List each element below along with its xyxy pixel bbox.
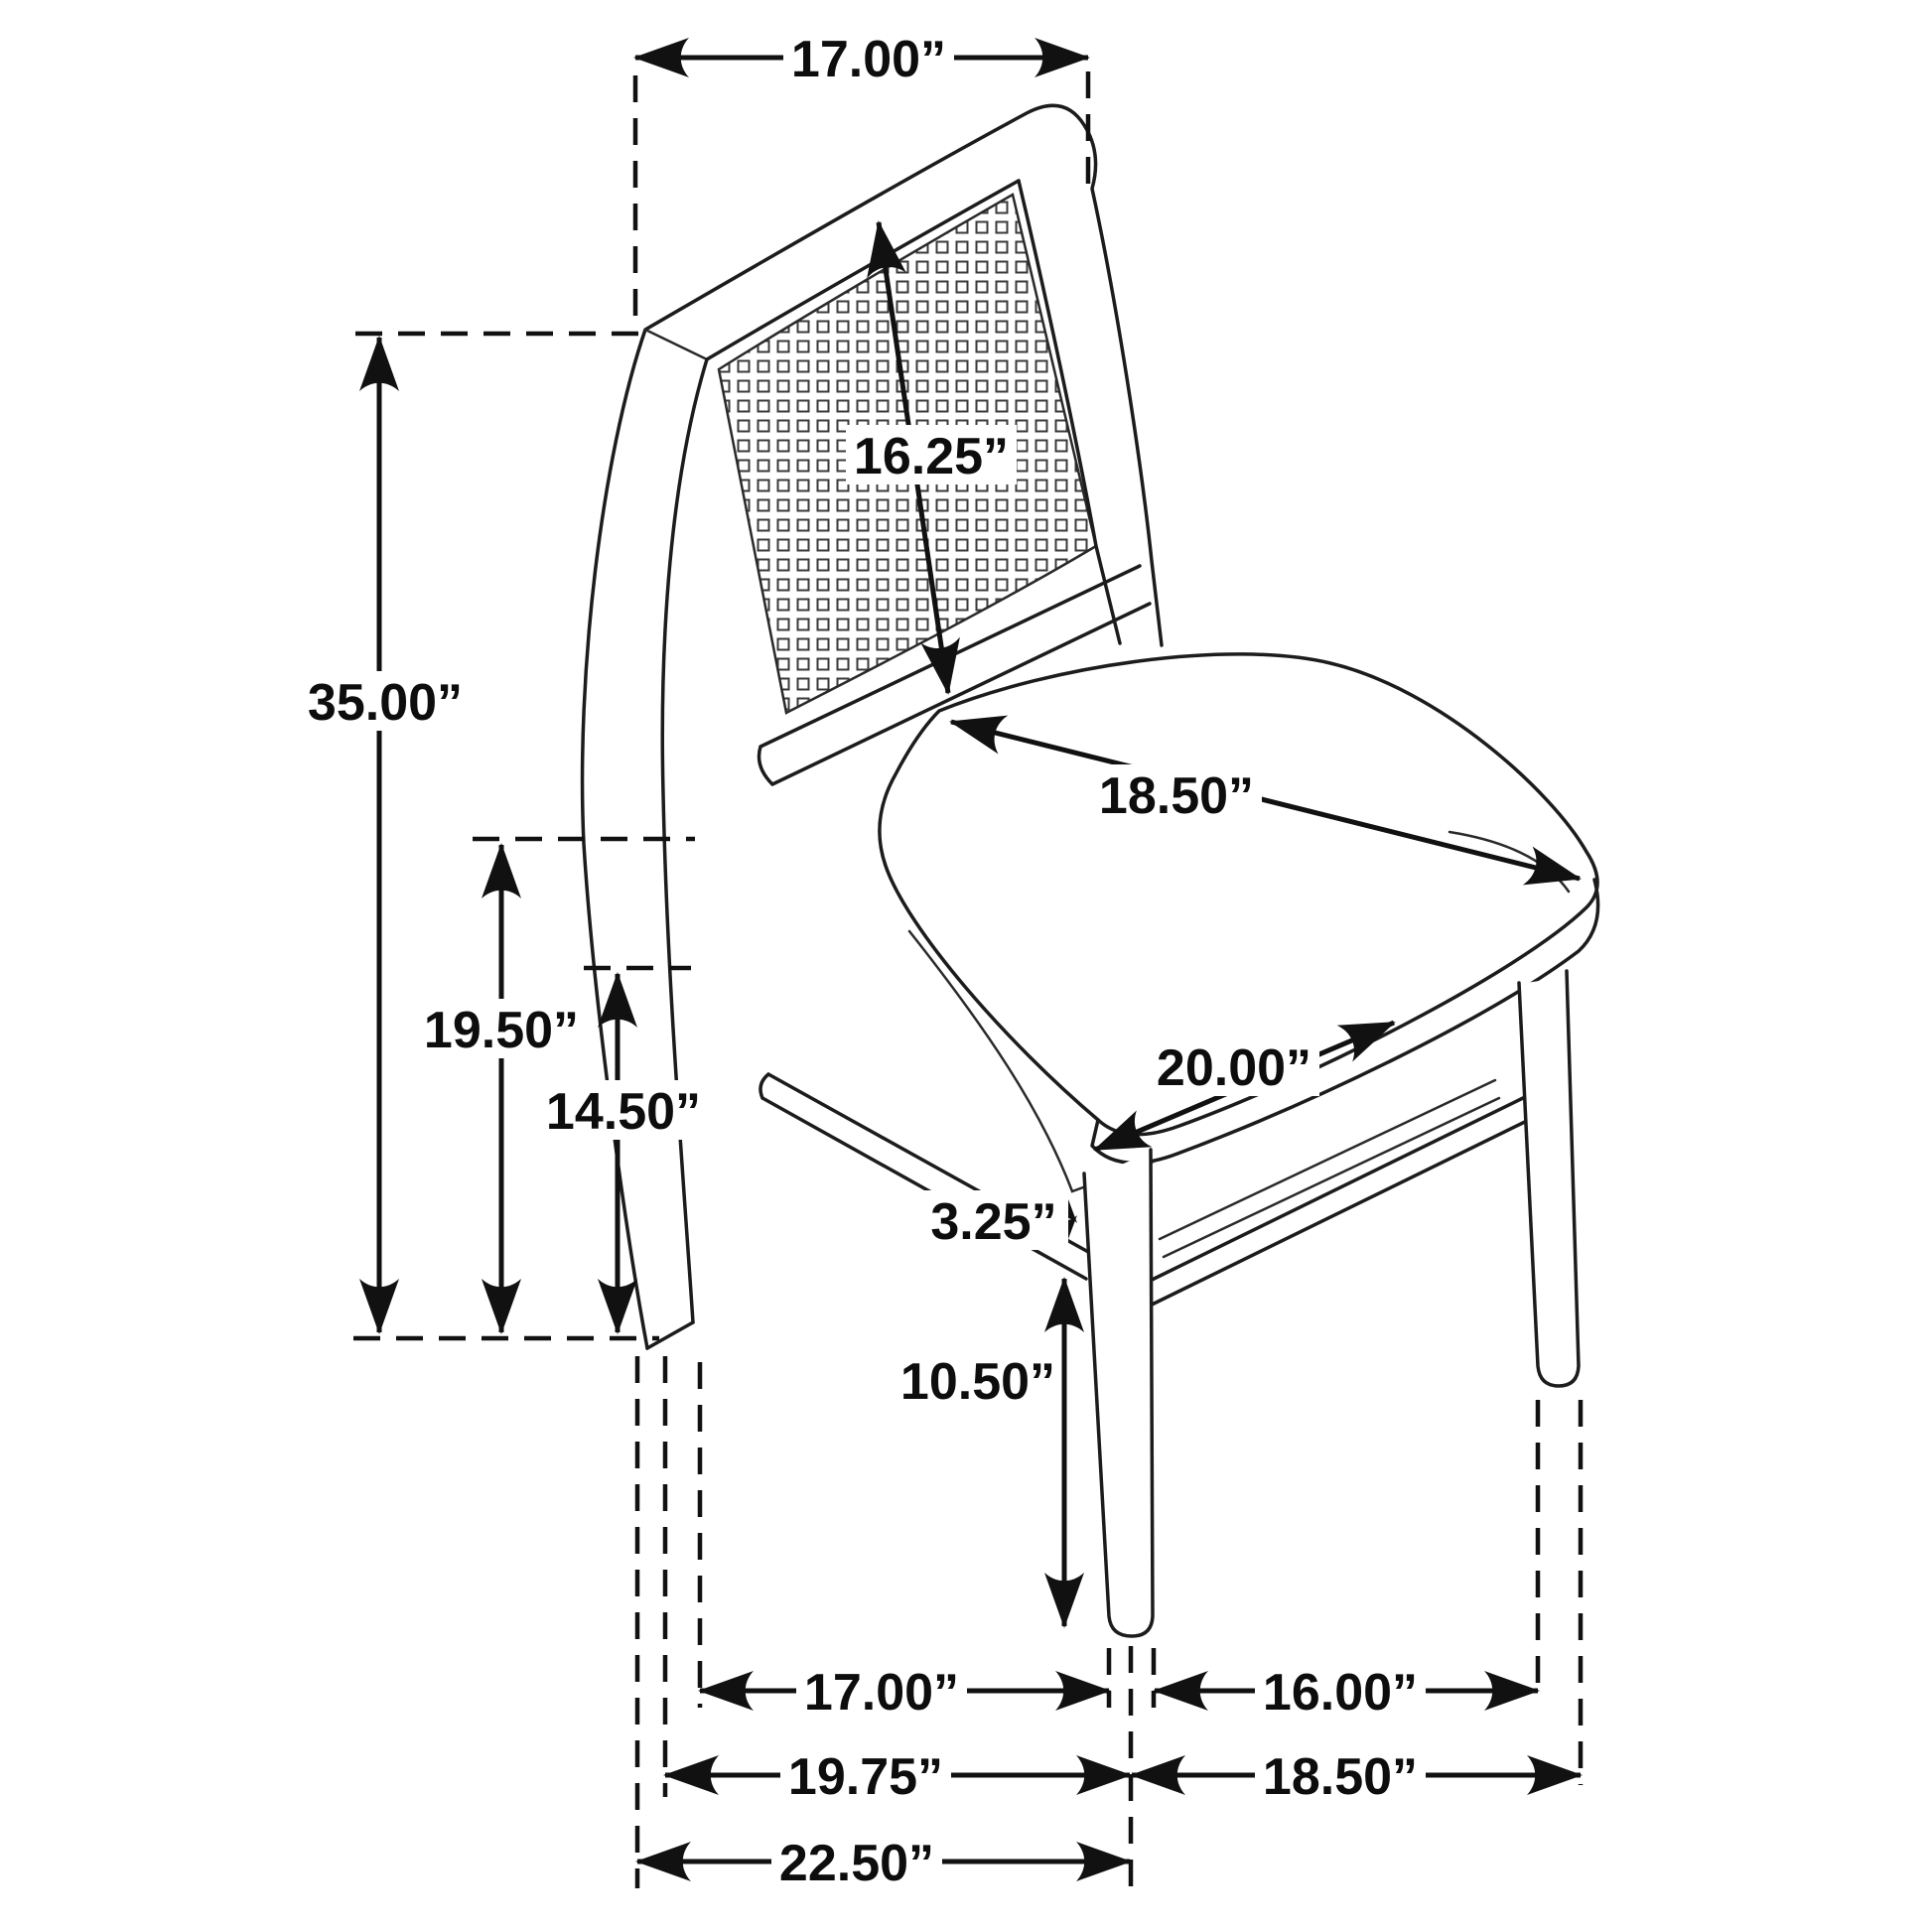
- back-left-leg-tip: [647, 1322, 693, 1348]
- dim-footprint-depth-label: 19.75”: [788, 1748, 943, 1806]
- dim-overall-depth: 22.50”: [771, 1832, 942, 1892]
- dim-seat-depth-label: 18.50”: [1099, 767, 1254, 825]
- dim-seat-width: 20.00”: [1149, 1036, 1319, 1097]
- dim-leg-span-side-label: 17.00”: [804, 1664, 959, 1722]
- dimension-diagram: 17.00” 16.25” 35.00” 19.50” 14.50” 18.50…: [0, 0, 1932, 1932]
- dim-stretcher-height: 14.50”: [538, 1080, 709, 1141]
- front-stretcher: [1138, 1098, 1529, 1309]
- dim-apron-stretcher-gap-label: 3.25”: [930, 1193, 1056, 1251]
- dim-back-top-width-label: 17.00”: [791, 31, 946, 88]
- dim-footprint-depth: 19.75”: [780, 1745, 951, 1806]
- dim-overall-height: 35.00”: [300, 671, 471, 732]
- dim-apron-stretcher-gap: 3.25”: [919, 1190, 1068, 1251]
- dim-back-diagonal: 16.25”: [846, 425, 1017, 485]
- frame-corner-seam: [645, 330, 707, 359]
- dim-front-leg-height: 10.50”: [898, 1350, 1057, 1411]
- dim-seat-width-label: 20.00”: [1157, 1039, 1311, 1097]
- chair-dimension-drawing: 17.00” 16.25” 35.00” 19.50” 14.50” 18.50…: [0, 0, 1932, 1932]
- dim-overall-height-label: 35.00”: [308, 674, 463, 732]
- front-left-leg-fill: [1084, 1150, 1153, 1636]
- dim-leg-span-front-label: 16.00”: [1263, 1664, 1418, 1722]
- dim-seat-depth: 18.50”: [1091, 764, 1262, 825]
- dim-leg-span-front: 16.00”: [1255, 1661, 1426, 1722]
- dim-seat-height: 19.50”: [416, 999, 587, 1059]
- chair-seat: [880, 654, 1598, 1191]
- dim-back-top-width: 17.00”: [783, 28, 954, 88]
- dim-seat-height-label: 19.50”: [424, 1002, 579, 1059]
- dim-footprint-width: 18.50”: [1255, 1745, 1426, 1806]
- dim-overall-depth-label: 22.50”: [779, 1835, 934, 1892]
- dim-front-leg-height-label: 10.50”: [900, 1353, 1055, 1411]
- dim-back-diagonal-label: 16.25”: [854, 428, 1009, 485]
- dim-footprint-width-label: 18.50”: [1263, 1748, 1418, 1806]
- dim-leg-span-side: 17.00”: [796, 1661, 967, 1722]
- dim-stretcher-height-label: 14.50”: [546, 1083, 701, 1141]
